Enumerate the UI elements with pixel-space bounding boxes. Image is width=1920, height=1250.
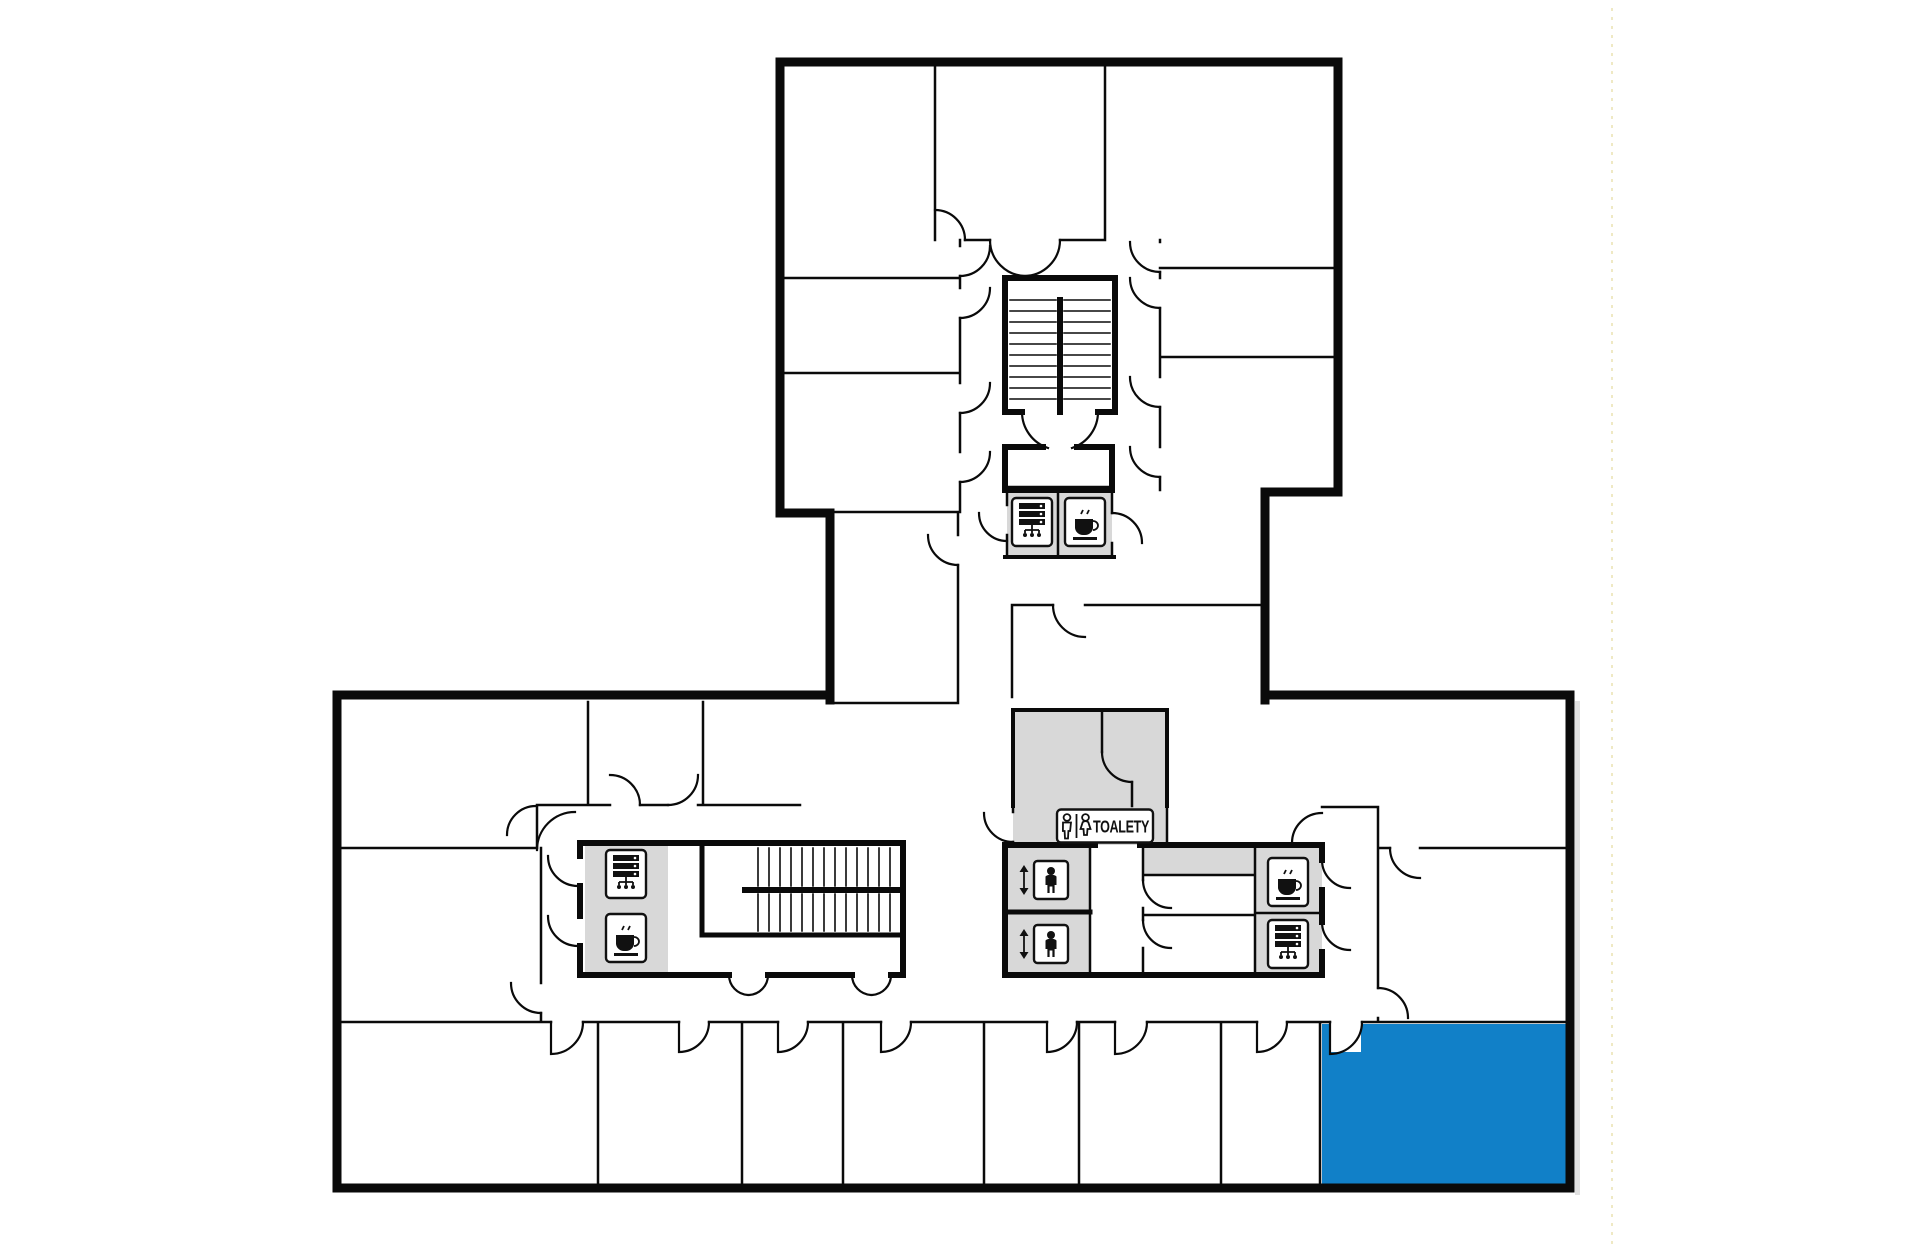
toilets-badge: TOALETY [1057, 810, 1153, 843]
office-rooms [341, 64, 1568, 1186]
office-room [341, 699, 586, 846]
server-rack-icon [1012, 498, 1052, 546]
office-room [341, 1024, 596, 1186]
room-highlighted-door-notch [1331, 1023, 1361, 1052]
office-room [1267, 699, 1568, 805]
floor-plan: TOALETY [0, 0, 1920, 1250]
coffee-cup-icon [1065, 498, 1105, 546]
coffee-cup-icon [1268, 858, 1308, 906]
wall-shadow [1575, 701, 1580, 1195]
server-rack-icon [1268, 920, 1308, 968]
office-room [590, 699, 701, 803]
door-arcs-top [928, 210, 1160, 637]
toilet-rooms [1143, 875, 1255, 973]
toilets-label: TOALETY [1093, 817, 1150, 837]
server-rack-icon [606, 850, 646, 898]
coffee-cup-icon [606, 914, 646, 962]
wall-vestibule-top-core [1005, 447, 1112, 490]
office-room [341, 850, 539, 1020]
floor-plan-page: TOALETY [0, 0, 1920, 1250]
toilet-anteroom [1013, 710, 1167, 806]
office-room [784, 375, 958, 510]
office-room [784, 64, 933, 276]
office-room [784, 280, 958, 371]
duct-strip [1143, 848, 1255, 875]
office-room [1014, 607, 1258, 695]
door-arcs-bottom-row [551, 1022, 1362, 1054]
core-vestibule [1090, 848, 1143, 975]
office-room [1107, 64, 1336, 266]
office-room [832, 514, 956, 701]
office-room [1162, 270, 1336, 355]
office-room [1162, 359, 1336, 490]
office-room [937, 64, 1103, 238]
